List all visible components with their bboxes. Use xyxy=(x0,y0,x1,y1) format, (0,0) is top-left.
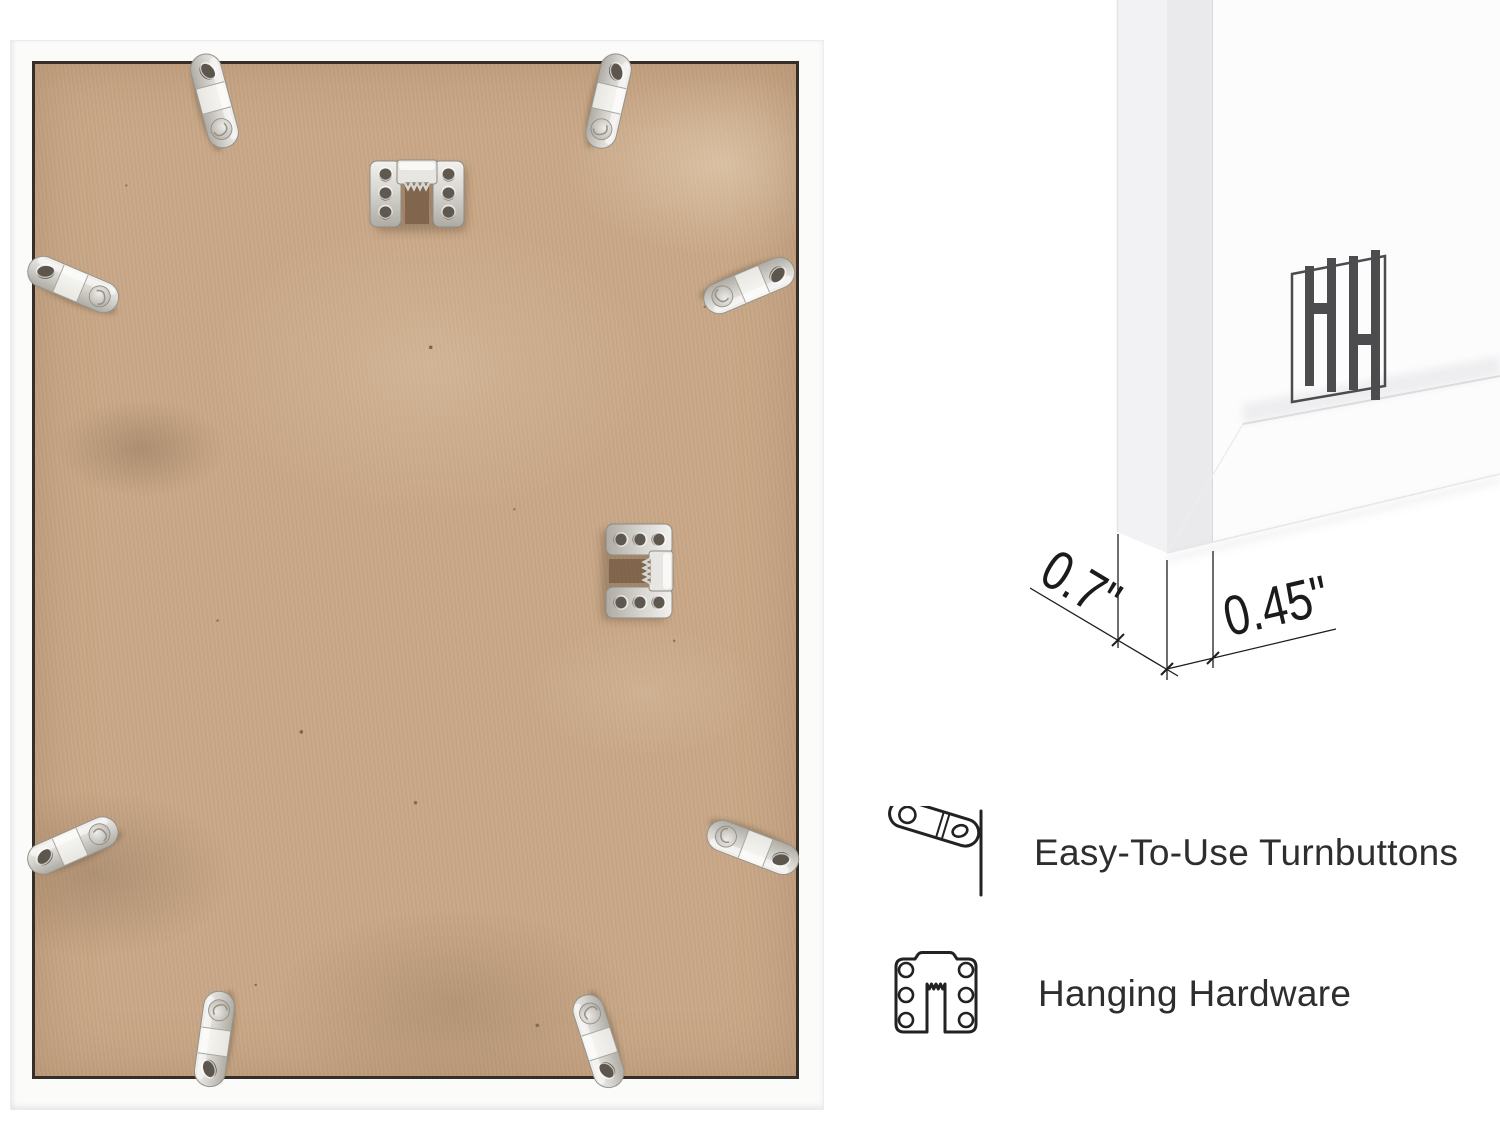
frame-side-face-inner xyxy=(1167,0,1213,553)
frame-back-photo xyxy=(10,40,824,1110)
sawtooth-hanger-middle xyxy=(601,523,677,619)
frame-side-face-outer xyxy=(1117,0,1167,553)
sawtooth-hanger-top xyxy=(369,156,465,232)
turnbutton-icon xyxy=(884,806,988,900)
feature-label-turnbuttons: Easy-To-Use Turnbuttons xyxy=(1034,832,1458,874)
feature-turnbuttons: Easy-To-Use Turnbuttons xyxy=(884,806,1458,900)
hanging-hardware-icon xyxy=(886,948,986,1040)
feature-hanging-hardware: Hanging Hardware xyxy=(886,948,1351,1040)
feature-label-hanging-hardware: Hanging Hardware xyxy=(1038,973,1351,1015)
